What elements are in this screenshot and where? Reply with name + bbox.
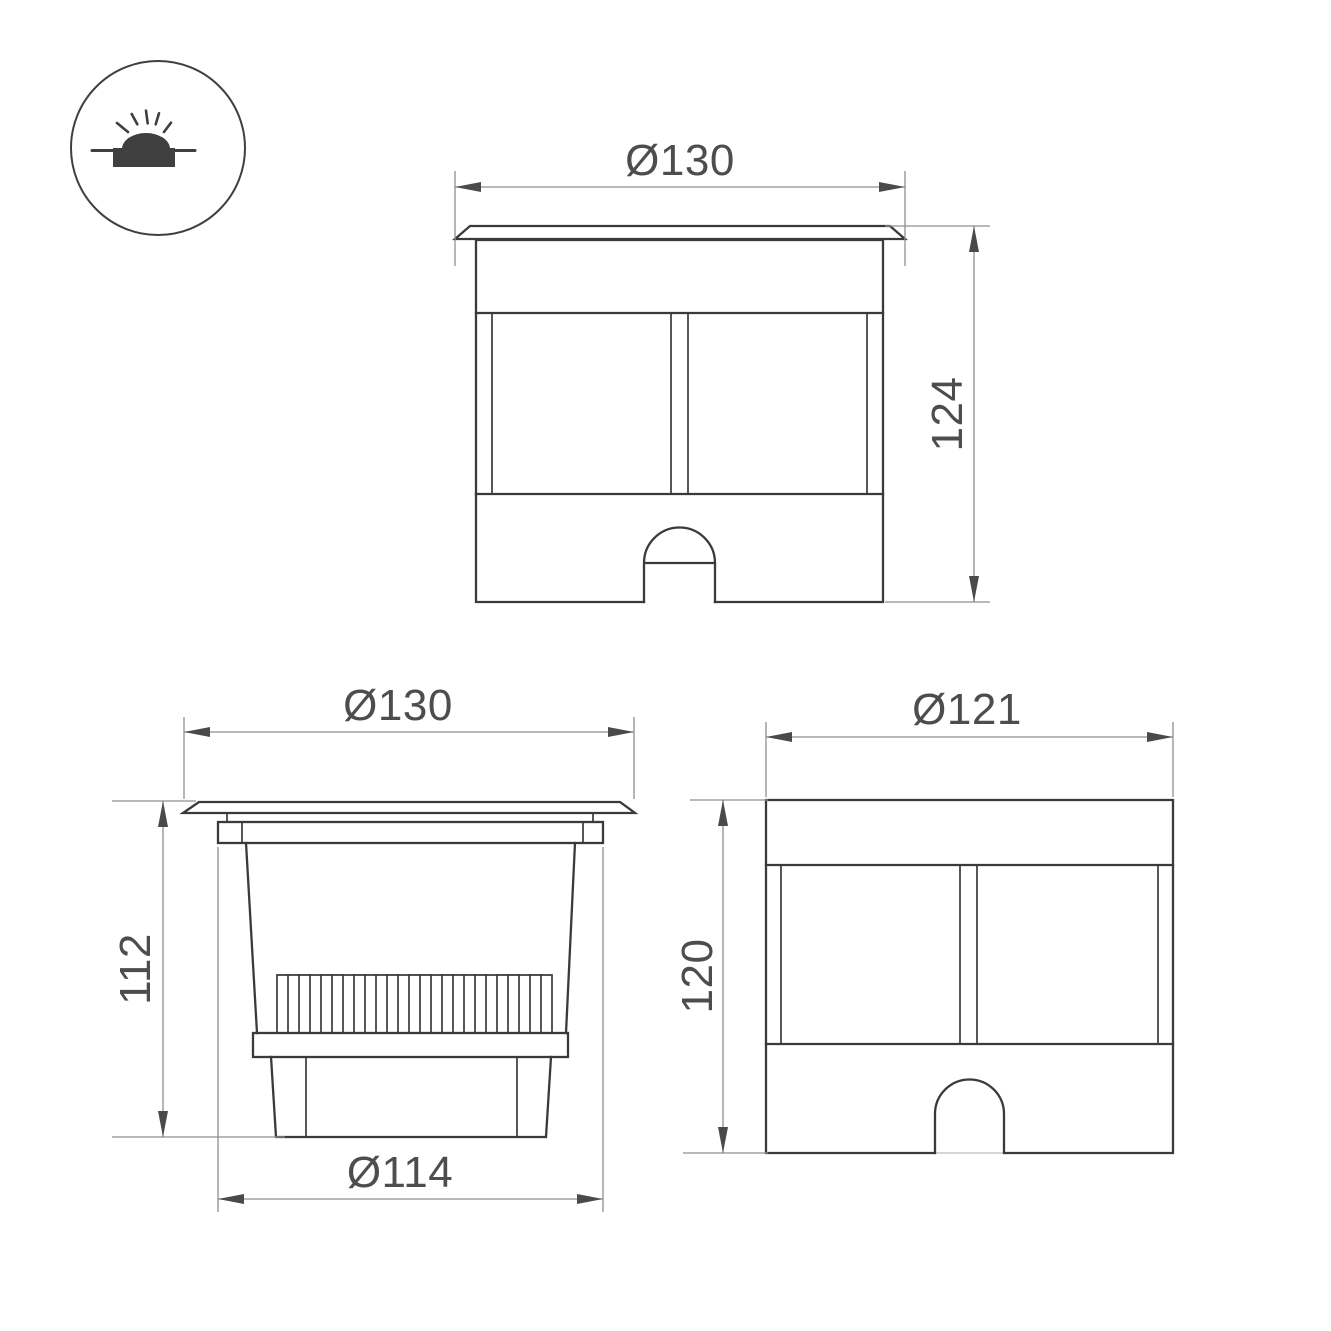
heatsink-outline bbox=[277, 975, 552, 1033]
base-inner-walls bbox=[306, 1057, 517, 1137]
section-view-diameter-dimension: Ø130 bbox=[184, 681, 634, 799]
arrowhead-top bbox=[718, 800, 728, 826]
section-view-height-dimension: 112 bbox=[111, 801, 285, 1137]
arrowhead-left bbox=[184, 727, 210, 737]
collar-wall-ticks bbox=[242, 822, 583, 843]
arrowhead-bottom bbox=[158, 1111, 168, 1137]
dimension-label: Ø114 bbox=[347, 1148, 453, 1197]
recessed-ground-light-icon bbox=[71, 61, 245, 235]
glass-window-frame bbox=[766, 865, 1173, 1044]
dimension-label: Ø130 bbox=[625, 136, 735, 185]
technical-drawing-page: Ø130 124 Ø130 112 bbox=[0, 0, 1331, 1331]
section-view-pot-diameter-dimension: Ø114 bbox=[218, 847, 603, 1212]
arrowhead-bottom bbox=[969, 576, 979, 602]
arrowhead-left bbox=[455, 182, 481, 192]
arrowhead-right bbox=[608, 727, 634, 737]
extension-lines bbox=[455, 171, 905, 266]
flange-outline bbox=[455, 226, 905, 239]
driver-plate bbox=[253, 1033, 568, 1057]
bucket-walls bbox=[246, 843, 575, 1033]
dimension-label: 112 bbox=[111, 933, 160, 1005]
light-rays-icon bbox=[117, 111, 171, 132]
housing-view-height-dimension: 120 bbox=[673, 800, 768, 1153]
gasket-step bbox=[227, 813, 593, 822]
glass-pane-dividers bbox=[781, 865, 1158, 1044]
luminaire-dimension-drawing: Ø130 124 Ø130 112 bbox=[0, 0, 1331, 1331]
front-view-diameter-dimension: Ø130 bbox=[455, 136, 905, 266]
dimension-label: Ø130 bbox=[343, 681, 453, 730]
glass-window-frame bbox=[476, 313, 883, 494]
arrowhead-left bbox=[218, 1194, 244, 1204]
front-view bbox=[455, 226, 905, 602]
flange-outline bbox=[183, 802, 635, 813]
arrowhead-right bbox=[1147, 732, 1173, 742]
arrowhead-left bbox=[766, 732, 792, 742]
arrowhead-right bbox=[879, 182, 905, 192]
light-dome-icon bbox=[122, 133, 170, 149]
heatsink-fins bbox=[288, 975, 541, 1033]
front-view-height-dimension: 124 bbox=[885, 226, 990, 602]
dimension-label: 124 bbox=[923, 377, 972, 452]
arrowhead-top bbox=[158, 801, 168, 827]
arrowhead-top bbox=[969, 226, 979, 252]
dimension-label: Ø121 bbox=[912, 685, 1022, 734]
housing-outline bbox=[476, 240, 883, 602]
housing-view-diameter-dimension: Ø121 bbox=[766, 685, 1173, 797]
cable-entry-arch bbox=[644, 528, 715, 603]
mounting-collar bbox=[218, 822, 603, 843]
dimension-label: 120 bbox=[673, 939, 722, 1014]
arrowhead-bottom bbox=[718, 1127, 728, 1153]
cable-entry-arch bbox=[935, 1080, 1004, 1154]
glass-pane-dividers bbox=[492, 313, 867, 494]
arrowhead-right bbox=[577, 1194, 603, 1204]
section-view bbox=[183, 802, 635, 1137]
base-outline bbox=[271, 1057, 551, 1137]
housing-view bbox=[766, 800, 1173, 1153]
housing-outline bbox=[766, 800, 1173, 1153]
